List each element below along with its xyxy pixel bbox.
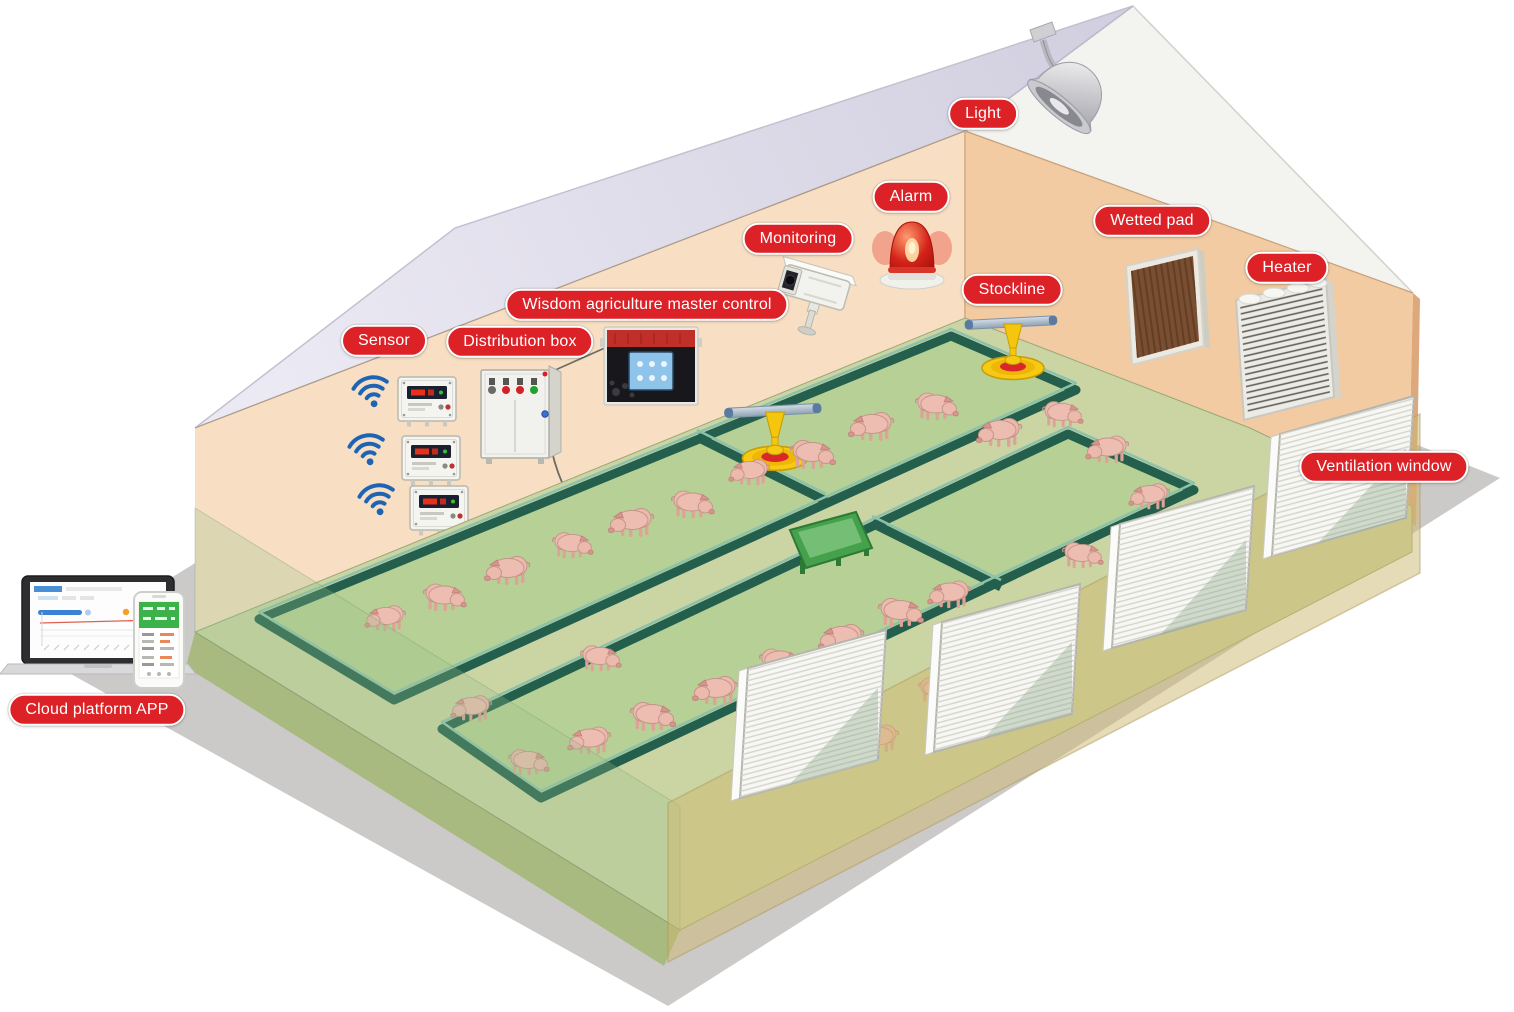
distribution-box-device xyxy=(481,366,561,464)
sensor-device xyxy=(398,377,456,427)
master-control-device xyxy=(600,327,702,405)
label-light: Light xyxy=(948,98,1018,130)
label-alarm: Alarm xyxy=(873,181,950,213)
label-heater: Heater xyxy=(1245,252,1328,284)
label-ventilation-window: Ventilation window xyxy=(1299,451,1468,483)
siren-icon xyxy=(872,222,952,289)
label-cloud-platform-app: Cloud platform APP xyxy=(8,694,185,726)
sensor-device xyxy=(402,436,460,486)
label-distribution-box: Distribution box xyxy=(446,326,593,358)
phone-icon xyxy=(134,592,184,688)
label-master-control: Wisdom agriculture master control xyxy=(505,289,788,321)
label-stockline: Stockline xyxy=(962,274,1063,306)
label-monitoring: Monitoring xyxy=(743,223,854,255)
wetted-pad-panel xyxy=(1126,249,1210,365)
cloud-platform-devices xyxy=(0,576,196,688)
heater-panel xyxy=(1236,279,1341,421)
label-wetted-pad: Wetted pad xyxy=(1093,205,1211,237)
farm-illustration xyxy=(0,0,1514,1012)
label-sensor: Sensor xyxy=(341,325,427,357)
smart-pig-farm-diagram: Light Alarm Monitoring Wisdom agricultur… xyxy=(0,0,1514,1012)
